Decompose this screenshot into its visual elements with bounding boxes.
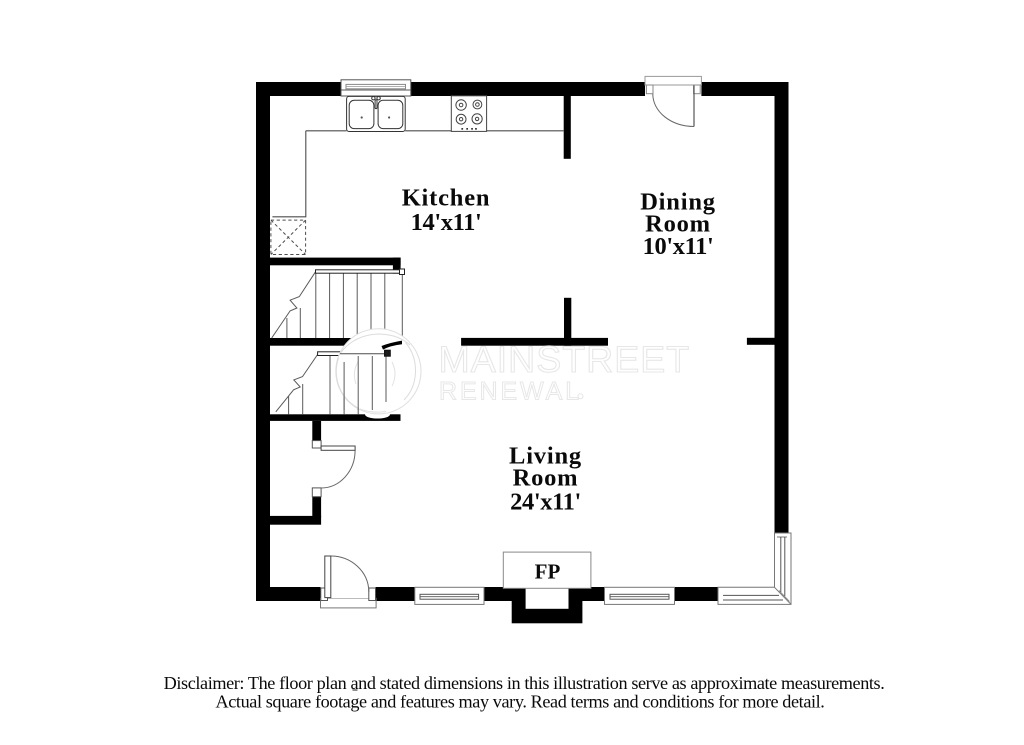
svg-text:RENEWAL: RENEWAL [439, 378, 582, 406]
svg-text:Disclaimer: The floor plan and: Disclaimer: The floor plan and stated di… [164, 673, 885, 693]
svg-text:14'x11': 14'x11' [411, 209, 482, 236]
svg-text:24'x11': 24'x11' [510, 489, 581, 516]
svg-text:FP: FP [535, 560, 561, 584]
svg-text:Room: Room [513, 464, 579, 491]
svg-text:MAINSTREET: MAINSTREET [439, 338, 691, 380]
svg-text:10'x11': 10'x11' [643, 233, 714, 260]
svg-text:Kitchen: Kitchen [402, 185, 491, 212]
svg-text:Actual square footage and feat: Actual square footage and features may v… [216, 692, 825, 712]
